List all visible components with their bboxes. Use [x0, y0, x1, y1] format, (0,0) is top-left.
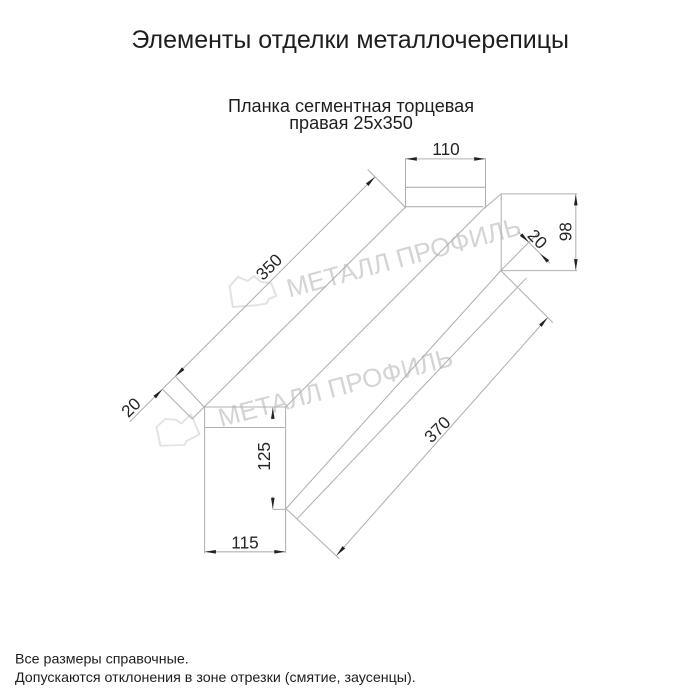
- svg-text:115: 115: [231, 533, 258, 553]
- svg-text:Допускаются отклонения в зоне: Допускаются отклонения в зоне отрезки (с…: [15, 670, 416, 686]
- svg-text:Элементы отделки металлочерепи: Элементы отделки металлочерепицы: [131, 26, 569, 54]
- svg-text:98: 98: [556, 222, 576, 241]
- svg-text:правая 25х350: правая 25х350: [289, 113, 413, 133]
- svg-text:Все размеры справочные.: Все размеры справочные.: [15, 651, 189, 667]
- svg-text:125: 125: [254, 442, 274, 471]
- svg-text:110: 110: [432, 139, 459, 159]
